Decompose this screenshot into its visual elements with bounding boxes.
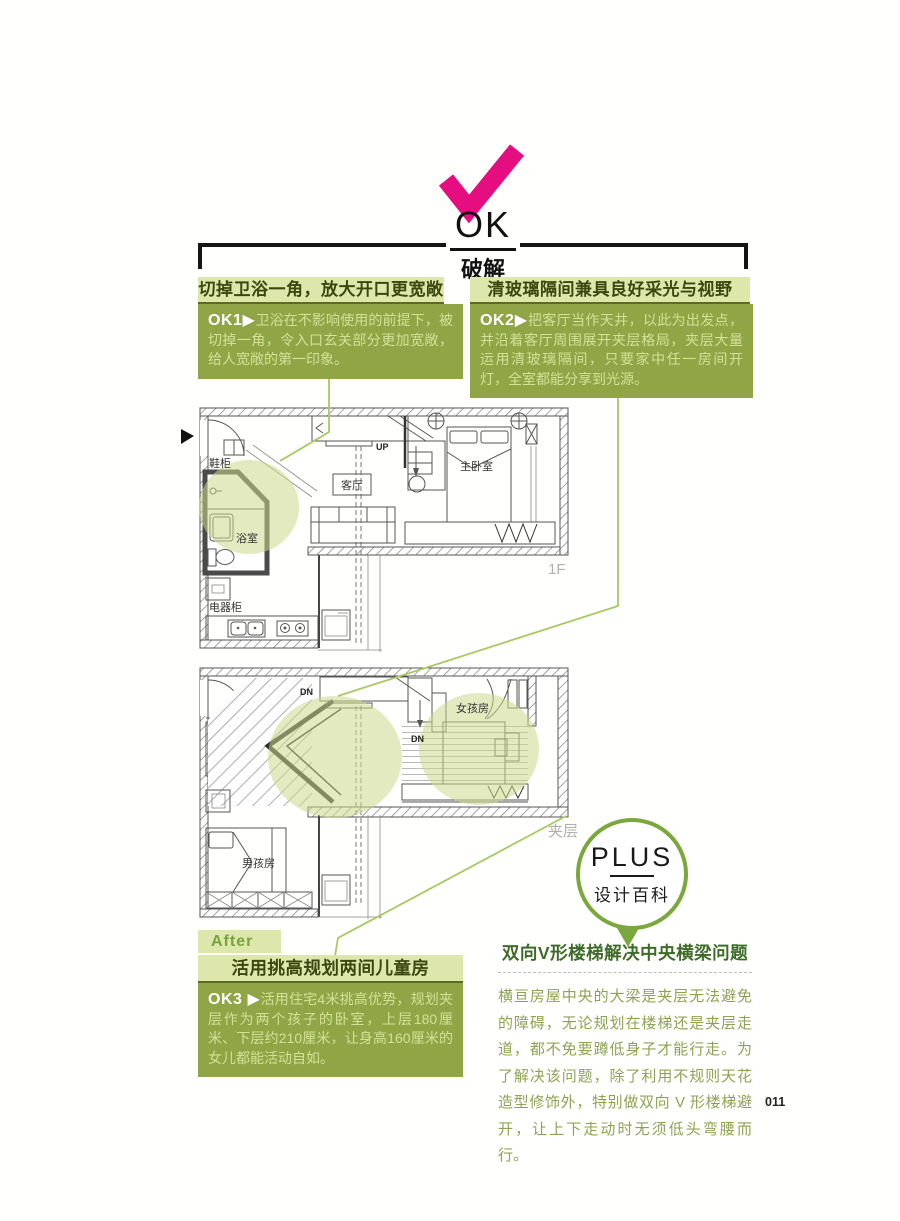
label-shoe-cabinet: 鞋柜	[209, 456, 231, 470]
plus-title: PLUS	[591, 842, 674, 873]
ok3-header: 活用挑高规划两间儿童房	[198, 955, 463, 983]
plus-section: 双向V形楼梯解决中央横梁问题 横亘房屋中央的大梁是夹层无法避免的障碍，无论规划在…	[498, 940, 752, 1170]
plus-title-underline	[610, 875, 654, 877]
plus-badge: PLUS 设计百科	[576, 818, 688, 930]
plus-section-divider	[498, 972, 752, 973]
caption-1f: 1F	[548, 561, 566, 578]
checkmark-icon	[446, 150, 517, 209]
label-living-room: 客厅	[341, 478, 363, 492]
ok2-block: OK2▶把客厅当作天井，以此为出发点，并沿着客厅周围展开夹层格局，夹层大量运用清…	[470, 304, 753, 398]
ok-badge: OK	[440, 204, 526, 246]
ok2-header: 清玻璃隔间兼具良好采光与视野	[470, 277, 750, 304]
label-dn-mid: DN	[411, 734, 424, 744]
label-up: UP	[376, 442, 389, 452]
after-label: After	[198, 930, 281, 953]
bracket-left	[198, 243, 446, 269]
ok1-tag: OK1▶	[208, 312, 255, 329]
label-girls-room: 女孩房	[456, 701, 489, 715]
plus-section-header: 双向V形楼梯解决中央横梁问题	[498, 940, 752, 965]
floorplan-mezzanine: 女孩房 男孩房 DN DN 夹层	[200, 668, 578, 919]
label-bathroom: 浴室	[236, 531, 258, 545]
highlight-vstair	[268, 696, 402, 818]
plus-section-body: 横亘房屋中央的大梁是夹层无法避免的障碍，无论规划在楼梯还是夹层走道，都不免要蹲低…	[498, 984, 752, 1170]
label-master-bedroom: 主卧室	[460, 459, 493, 473]
ok-underline	[450, 248, 516, 251]
ok2-tag: OK2▶	[480, 312, 528, 329]
ok3-block: OK3 ▶活用住宅4米挑高优势，规划夹层作为两个孩子的卧室，上层180厘米、下层…	[198, 983, 463, 1077]
label-appliance-cabinet: 电器柜	[209, 601, 242, 614]
entry-arrow-icon	[181, 429, 194, 444]
ok1-block: OK1▶卫浴在不影响使用的前提下，被切掉一角，令入口玄关部分更加宽敞，给人宽敞的…	[198, 304, 463, 379]
ok3-tag: OK3 ▶	[208, 991, 261, 1008]
floorplan-1f: 鞋柜 浴室 客厅 主卧室 电器柜 UP 1F	[181, 408, 568, 652]
label-dn-top: DN	[300, 687, 313, 697]
plus-subtitle: 设计百科	[594, 881, 670, 906]
ok1-header: 切掉卫浴一角，放大开口更宽敞	[198, 277, 444, 304]
caption-mezzanine: 夹层	[548, 823, 578, 840]
book-page: 鞋柜 浴室 客厅 主卧室 电器柜 UP 1F	[0, 0, 900, 1221]
page-number: 011	[765, 1095, 785, 1109]
bracket-right	[520, 243, 748, 269]
label-boys-room: 男孩房	[242, 857, 275, 870]
